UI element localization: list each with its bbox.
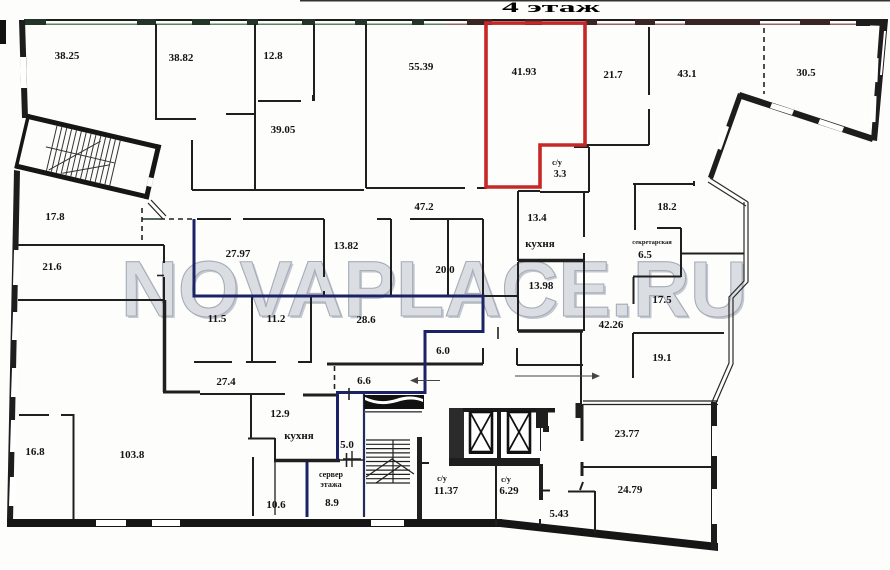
svg-text:27.97: 27.97 bbox=[226, 248, 251, 260]
svg-text:12.8: 12.8 bbox=[263, 50, 283, 62]
svg-text:39.05: 39.05 bbox=[271, 124, 296, 136]
svg-text:6.29: 6.29 bbox=[499, 485, 519, 497]
svg-text:кухня: кухня bbox=[525, 238, 555, 250]
svg-text:17.8: 17.8 bbox=[45, 211, 65, 223]
svg-text:12.9: 12.9 bbox=[270, 408, 290, 420]
svg-text:38.82: 38.82 bbox=[169, 52, 194, 64]
svg-text:103.8: 103.8 bbox=[120, 449, 145, 461]
svg-text:11.5: 11.5 bbox=[208, 313, 227, 325]
svg-text:43.1: 43.1 bbox=[677, 68, 696, 80]
svg-text:38.25: 38.25 bbox=[55, 50, 80, 62]
svg-text:кухня: кухня bbox=[284, 430, 314, 442]
svg-text:16.8: 16.8 bbox=[25, 446, 45, 458]
svg-text:секретарская: секретарская bbox=[632, 239, 672, 246]
svg-text:6.5: 6.5 bbox=[638, 249, 652, 261]
svg-text:11.37: 11.37 bbox=[434, 485, 459, 497]
svg-text:с/у: с/у bbox=[437, 474, 447, 483]
svg-text:41.93: 41.93 bbox=[512, 66, 537, 78]
svg-text:8.9: 8.9 bbox=[325, 497, 339, 509]
svg-text:21.7: 21.7 bbox=[603, 69, 623, 81]
svg-text:47.2: 47.2 bbox=[414, 201, 434, 213]
svg-text:42.26: 42.26 bbox=[599, 319, 624, 331]
svg-text:6.6: 6.6 bbox=[357, 375, 371, 387]
svg-text:3.3: 3.3 bbox=[554, 169, 567, 180]
svg-text:этажа: этажа bbox=[320, 480, 341, 489]
svg-text:13.4: 13.4 bbox=[527, 212, 547, 224]
svg-text:13.98: 13.98 bbox=[529, 280, 554, 292]
svg-text:23.77: 23.77 bbox=[615, 428, 640, 440]
svg-text:24.79: 24.79 bbox=[618, 484, 643, 496]
svg-text:10.6: 10.6 bbox=[266, 499, 286, 511]
svg-text:55.39: 55.39 bbox=[409, 61, 434, 73]
svg-text:5.0: 5.0 bbox=[340, 439, 354, 451]
svg-text:17.5: 17.5 bbox=[652, 294, 672, 306]
svg-text:11.2: 11.2 bbox=[267, 313, 286, 325]
svg-text:сервер: сервер bbox=[319, 470, 344, 479]
svg-text:5.43: 5.43 bbox=[549, 508, 569, 520]
svg-text:с/у: с/у bbox=[552, 158, 562, 167]
svg-text:6.0: 6.0 bbox=[436, 345, 450, 357]
svg-text:27.4: 27.4 bbox=[216, 376, 236, 388]
svg-text:4 этаж: 4 этаж bbox=[502, 0, 600, 16]
svg-text:20.0: 20.0 bbox=[435, 264, 455, 276]
svg-text:30.5: 30.5 bbox=[796, 67, 816, 79]
svg-text:13.82: 13.82 bbox=[334, 240, 359, 252]
svg-text:21.6: 21.6 bbox=[42, 261, 62, 273]
svg-text:28.6: 28.6 bbox=[356, 314, 376, 326]
svg-text:с/у: с/у bbox=[501, 475, 511, 484]
svg-text:18.2: 18.2 bbox=[657, 201, 677, 213]
svg-text:19.1: 19.1 bbox=[652, 352, 671, 364]
